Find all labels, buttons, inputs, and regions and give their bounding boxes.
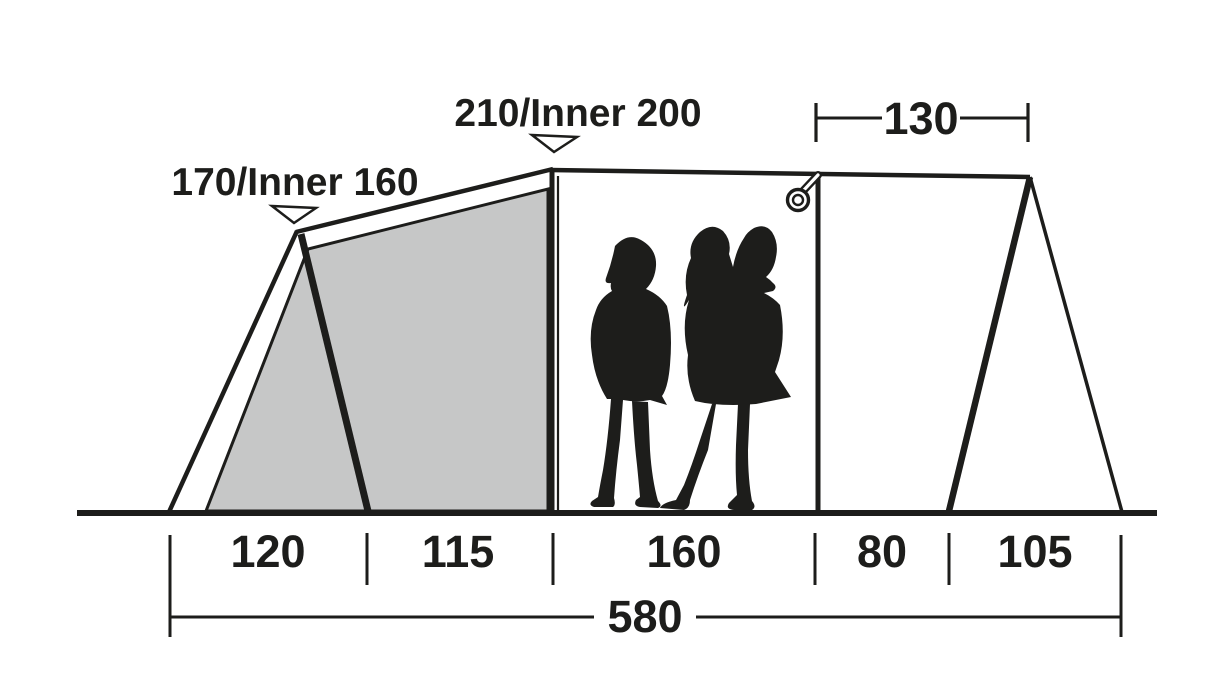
floor-segment-value: 120 [230,526,305,577]
main-height-label: 210/Inner 200 [454,92,701,135]
top-width-dimension: 130 [816,93,1028,144]
total-length-value: 580 [607,591,682,642]
floor-segment-value: 80 [857,526,907,577]
rear-guy-line [1030,177,1122,512]
inner-tent-panel [206,189,548,511]
rear-pole [949,177,1030,511]
adult-silhouette [590,237,671,507]
ceiling-line [550,170,1030,177]
floor-segment-value: 160 [646,526,721,577]
pointer-triangle-icon [272,206,316,223]
diagram-canvas: 170/Inner 160 210/Inner 200 130 120 115 … [0,0,1230,699]
adult-leg [632,401,661,508]
total-length-dimension: 580 [170,591,1121,642]
front-height-label: 170/Inner 160 [171,161,418,204]
hanging-loop-icon [788,175,819,211]
top-width-value: 130 [883,93,958,144]
people-scale-silhouette [590,226,791,510]
pointer-triangle-icon [532,135,577,152]
adult2-right-leg [728,404,755,510]
adult2-left-leg [660,404,716,510]
adult-with-child-silhouette [684,226,791,405]
floor-segment-value: 115 [422,526,495,577]
floor-segment-value: 105 [997,526,1072,577]
tent-dimension-diagram: 170/Inner 160 210/Inner 200 130 120 115 … [0,0,1230,699]
